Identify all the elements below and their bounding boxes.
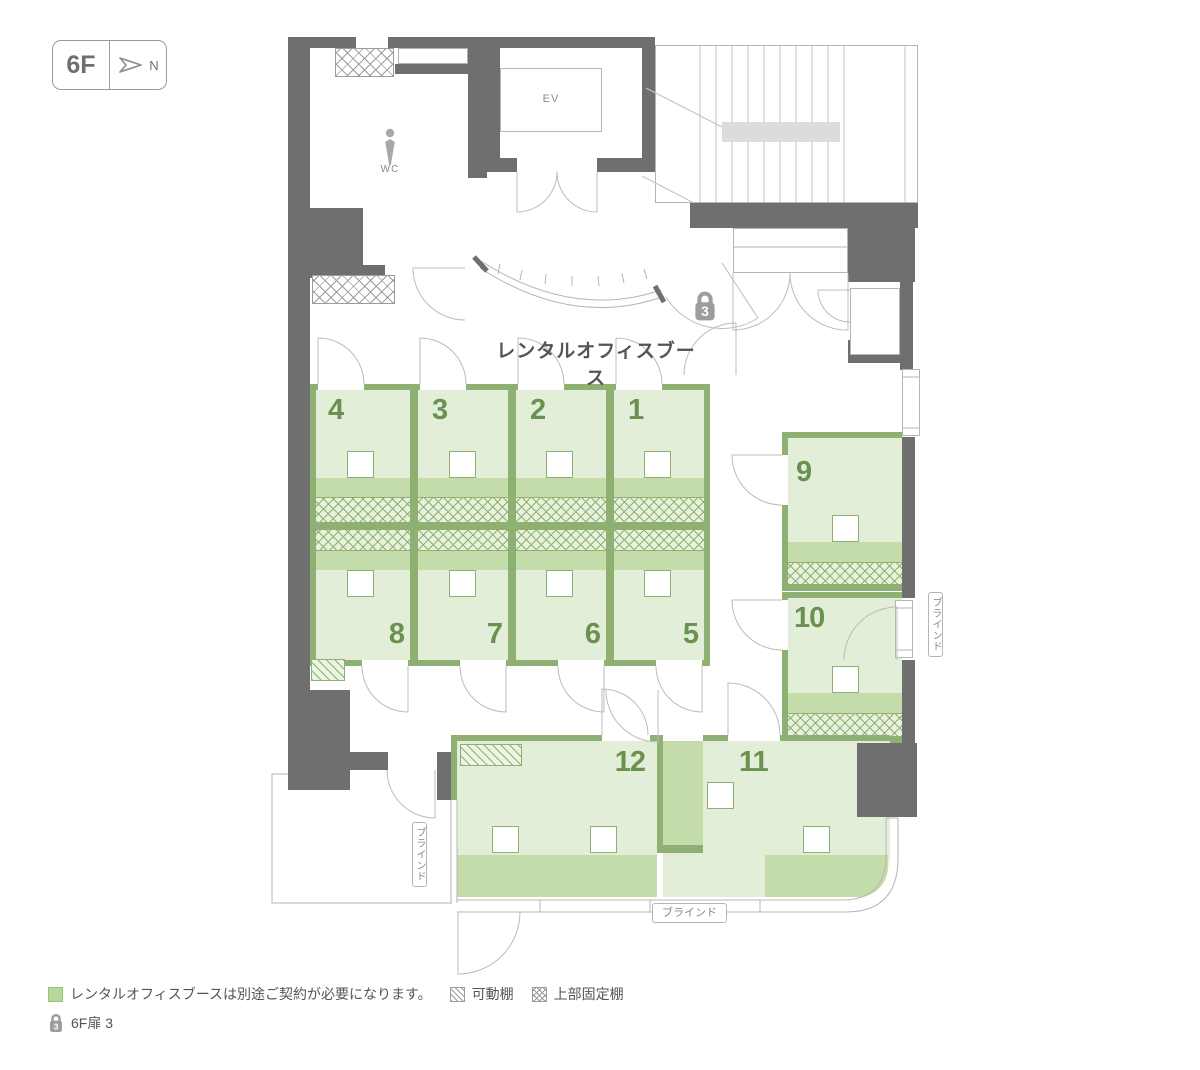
door-lock-icon: 3	[692, 290, 718, 322]
desk-counter	[316, 551, 410, 570]
wall-niche	[398, 48, 468, 64]
north-label: N	[149, 58, 158, 73]
wall-segment	[902, 660, 915, 743]
north-arrow-icon	[117, 55, 147, 75]
wall-segment	[850, 355, 900, 363]
booth-number: 3	[432, 396, 447, 425]
chair	[546, 451, 573, 478]
wall-segment	[848, 223, 915, 282]
divider-cabinet	[663, 741, 703, 845]
movable-shelf-hatch	[460, 744, 522, 766]
desk-counter	[316, 478, 410, 497]
fixed-shelf-hatch	[418, 529, 508, 551]
legend-row-door: 3 6F扉 3	[48, 1013, 624, 1033]
movable-shelf-swatch	[450, 987, 465, 1002]
wc-person-icon	[383, 128, 397, 166]
desk-counter	[516, 478, 606, 497]
fixed-shelf-hatch	[614, 529, 704, 551]
booth-number: 9	[796, 458, 811, 487]
booth-12: 12	[451, 735, 663, 897]
chair	[832, 666, 859, 693]
door-opening	[656, 660, 702, 666]
desk-counter	[516, 551, 606, 570]
desk-counter	[614, 551, 704, 570]
door-opening	[362, 660, 408, 666]
desk-counter	[614, 478, 704, 497]
door-lock-icon: 3	[48, 1013, 64, 1033]
wall-segment	[642, 48, 655, 172]
desk-counter	[765, 855, 888, 897]
blind-label: ブラインド	[652, 903, 727, 923]
door-lock-count: 3	[54, 1021, 59, 1031]
booth-number: 5	[662, 620, 698, 649]
wall-segment	[288, 37, 310, 690]
wall-segment	[468, 37, 487, 178]
booth-wall	[782, 585, 902, 591]
chair	[644, 451, 671, 478]
wall-segment	[900, 282, 913, 370]
booth-swatch	[48, 987, 63, 1002]
wall-segment	[487, 158, 517, 172]
door-opening	[460, 660, 506, 666]
wall-segment	[902, 437, 915, 598]
desk-counter	[788, 693, 902, 713]
booth-floor	[663, 853, 703, 897]
wall-segment	[487, 37, 655, 48]
north-indicator: N	[110, 41, 166, 89]
chair	[707, 782, 734, 809]
booth-grid: 4 3 2 1 8 7 6 5	[310, 384, 710, 666]
floor-plan-canvas: 6F N	[0, 0, 1200, 1070]
booth-number: 8	[368, 620, 404, 649]
floor-badge: 6F N	[52, 40, 167, 90]
chair	[492, 826, 519, 853]
desk-counter	[418, 551, 508, 570]
fixed-shelf-hatch	[788, 713, 902, 737]
legend: レンタルオフィスブースは別途ご契約が必要になります。 可動棚 上部固定棚 3 6…	[48, 984, 624, 1042]
fixed-shelf-hatch	[516, 529, 606, 551]
chair	[832, 515, 859, 542]
desk-counter	[418, 478, 508, 497]
fixed-shelf-hatch	[335, 48, 394, 77]
booth-number: 10	[794, 604, 824, 633]
movable-shelf-hatch	[311, 659, 345, 681]
ev-label: EV	[526, 93, 576, 105]
fixed-shelf-hatch	[614, 497, 704, 523]
wc-label: WC	[376, 164, 404, 175]
plan-title: レンタルオフィスブース	[494, 336, 698, 390]
wall-segment	[487, 48, 500, 172]
chair	[449, 451, 476, 478]
booth-number: 7	[466, 620, 502, 649]
wall-segment	[597, 158, 655, 172]
legend-movable-shelf: 可動棚	[472, 984, 514, 1004]
legend-row-shelves: レンタルオフィスブースは別途ご契約が必要になります。 可動棚 上部固定棚	[48, 984, 624, 1004]
wall-segment	[857, 743, 917, 817]
fixed-shelf-hatch	[418, 497, 508, 523]
booth-number: 2	[530, 396, 545, 425]
wall-segment	[288, 690, 350, 790]
fixed-shelf-hatch	[516, 497, 606, 523]
legend-door-note: 6F扉 3	[71, 1013, 113, 1033]
chair	[803, 826, 830, 853]
chair	[347, 451, 374, 478]
chair	[347, 570, 374, 597]
booth-number: 4	[328, 396, 343, 425]
booth-number: 11	[739, 748, 768, 777]
fixed-shelf-swatch	[532, 987, 547, 1002]
fixed-shelf-hatch	[316, 497, 410, 523]
divider-wall	[657, 845, 703, 853]
booth-10: 10	[782, 592, 902, 743]
fixed-shelf-hatch	[788, 562, 902, 585]
blind-label: ブラインド	[928, 592, 943, 657]
blind-label: ブラインド	[412, 822, 427, 887]
door-lock-count: 3	[701, 303, 709, 319]
chair	[644, 570, 671, 597]
door-opening	[728, 735, 780, 741]
chair	[546, 570, 573, 597]
fixed-shelf-hatch	[312, 275, 395, 304]
booth-number: 1	[628, 396, 643, 425]
wall-segment	[350, 752, 388, 770]
floor-label: 6F	[53, 41, 110, 89]
chair	[449, 570, 476, 597]
wall-segment	[395, 64, 468, 74]
door-opening	[558, 660, 604, 666]
legend-booth-note: レンタルオフィスブースは別途ご契約が必要になります。	[70, 984, 432, 1004]
booth-number: 6	[564, 620, 600, 649]
fixed-shelf-hatch	[316, 529, 410, 551]
desk-counter	[788, 542, 902, 562]
legend-fixed-shelf: 上部固定棚	[554, 984, 624, 1004]
booth-number: 12	[601, 748, 645, 777]
desk-counter	[457, 855, 657, 897]
wall-opening	[356, 37, 388, 48]
booth-9: 9	[782, 432, 902, 591]
chair	[590, 826, 617, 853]
